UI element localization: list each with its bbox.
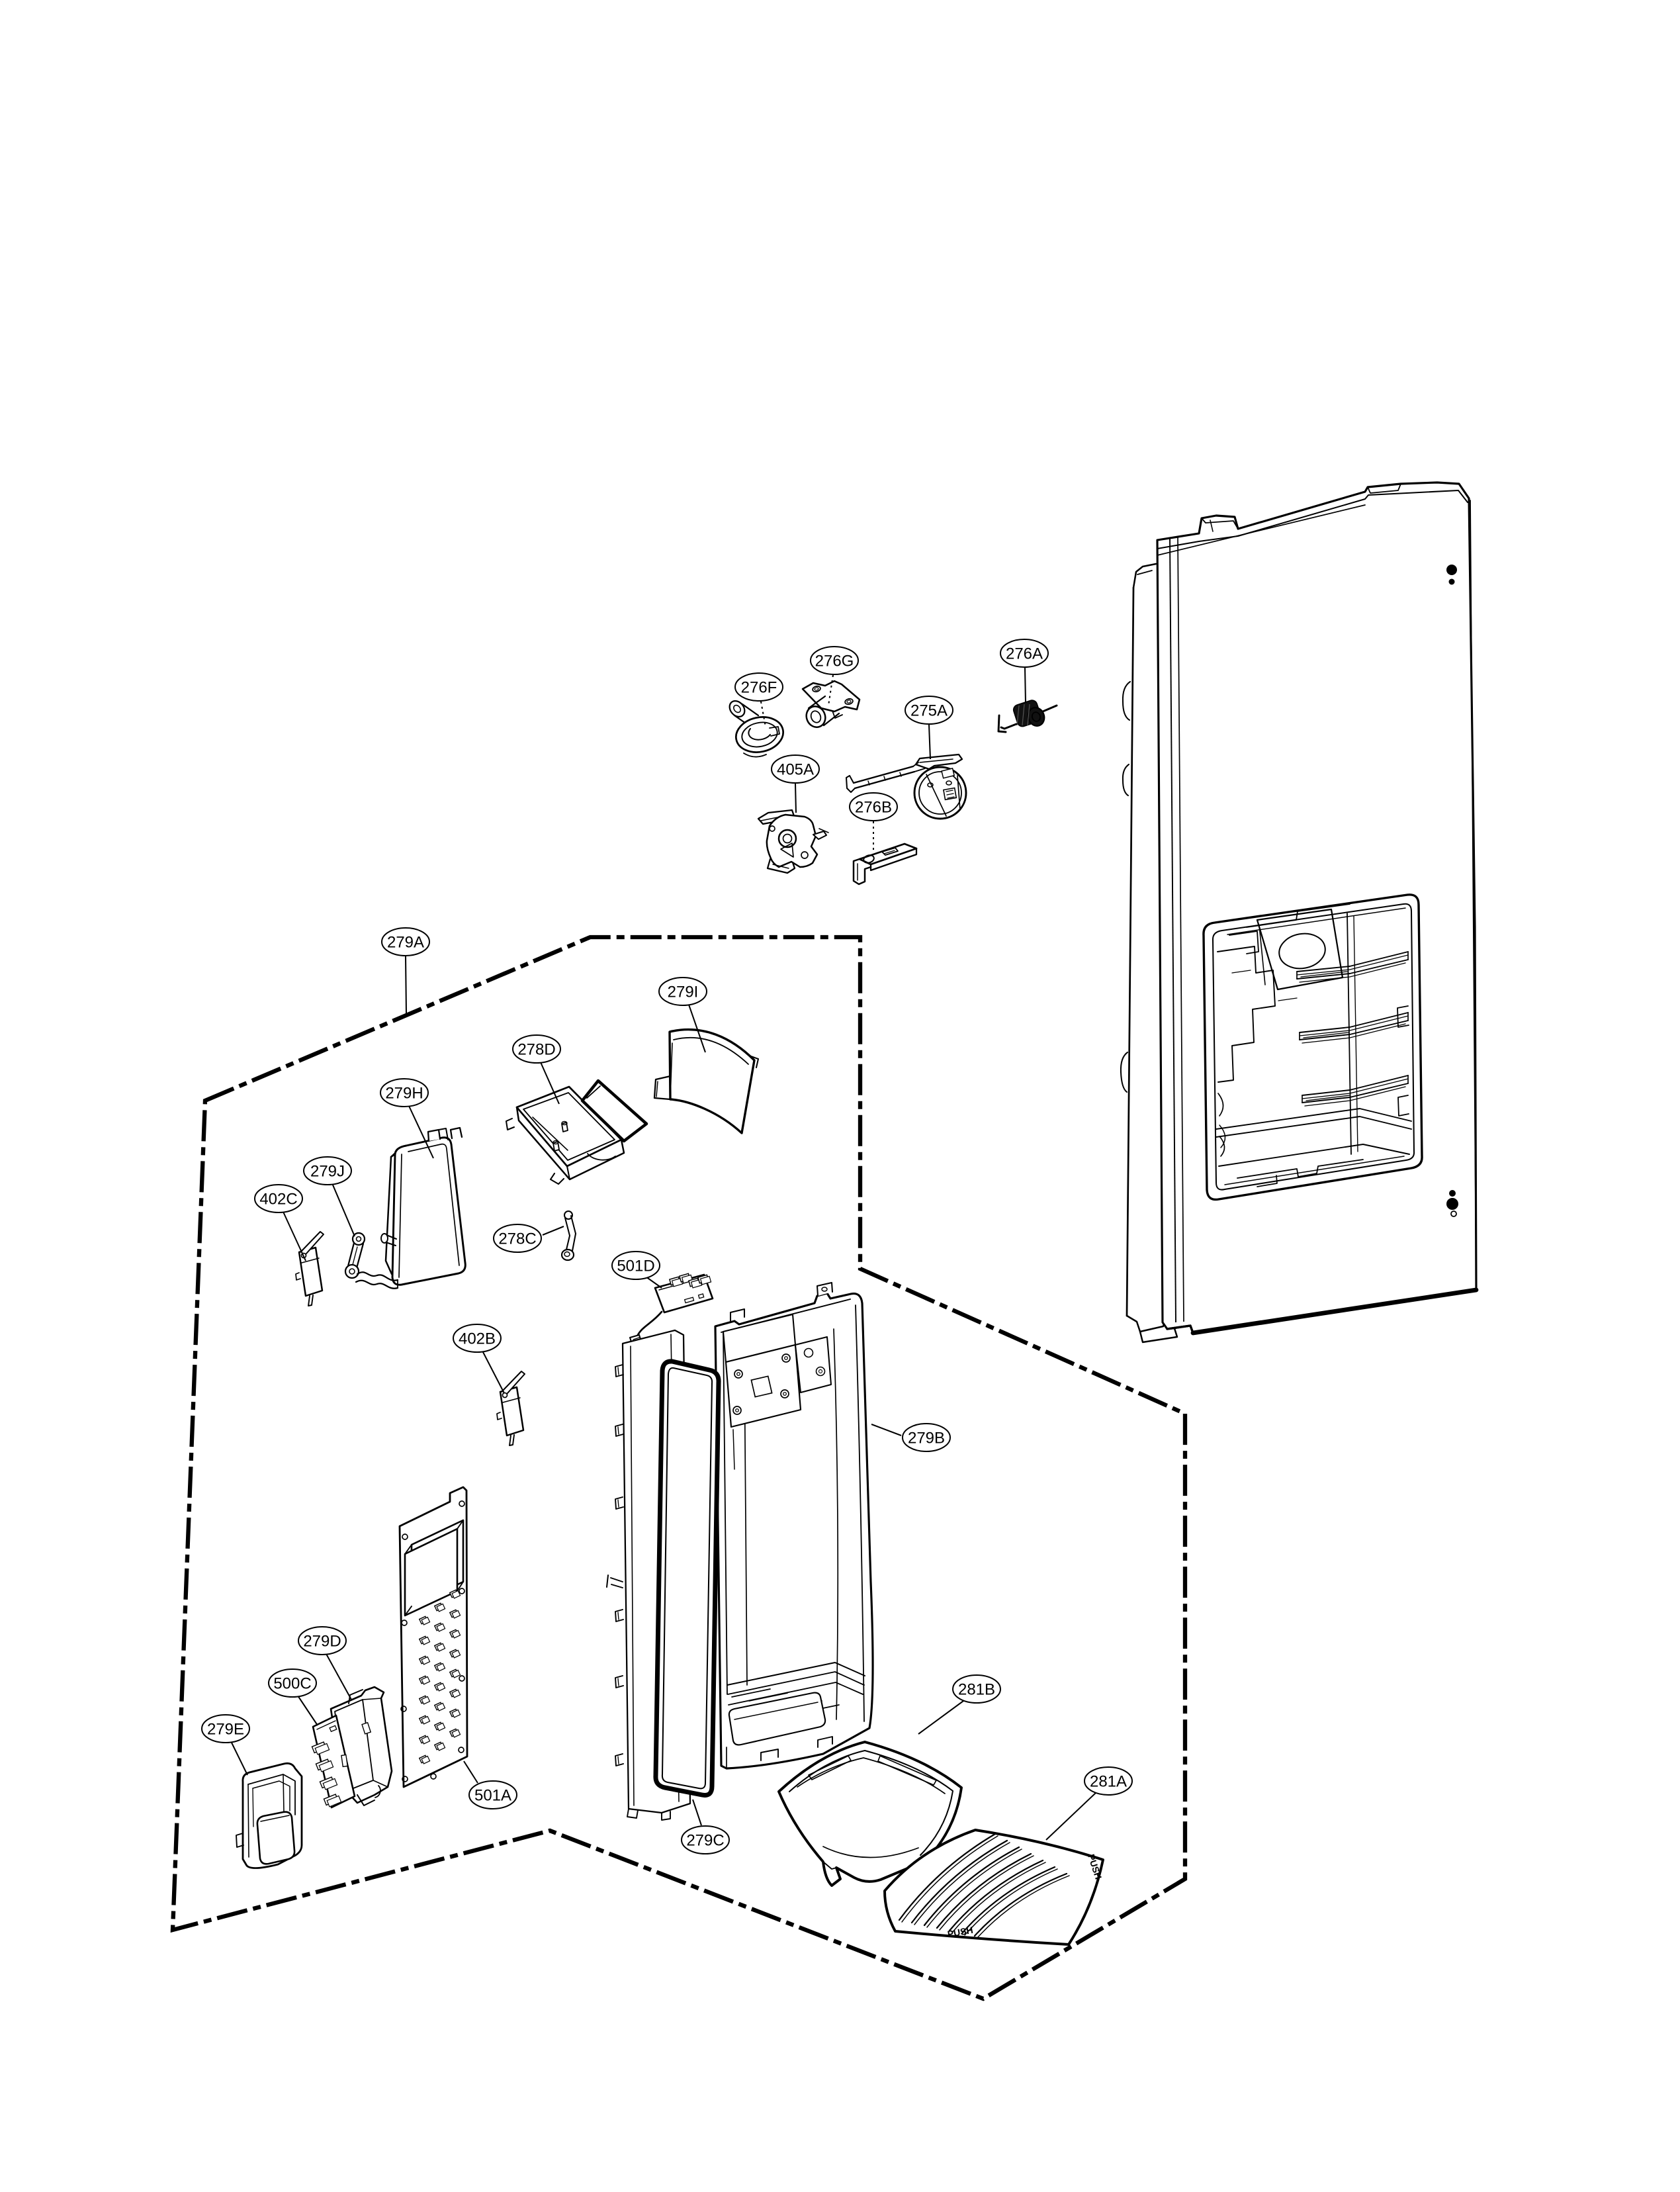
svg-text:405A: 405A [777,761,814,779]
svg-text:402C: 402C [259,1191,297,1209]
svg-text:279E: 279E [207,1721,244,1739]
svg-text:279J: 279J [310,1163,345,1181]
svg-text:276A: 276A [1006,645,1043,663]
svg-text:279C: 279C [686,1832,724,1850]
svg-text:281A: 281A [1090,1773,1127,1791]
svg-text:279A: 279A [387,934,424,952]
svg-text:279B: 279B [908,1430,945,1447]
svg-text:501D: 501D [617,1257,654,1275]
svg-text:276G: 276G [815,653,854,670]
svg-text:281B: 281B [958,1681,995,1699]
svg-text:402B: 402B [459,1330,496,1348]
svg-text:275A: 275A [910,702,948,720]
svg-text:279I: 279I [668,983,699,1001]
svg-text:278D: 278D [517,1041,555,1059]
svg-text:278C: 278C [498,1230,536,1248]
svg-text:279D: 279D [303,1633,341,1651]
svg-text:500C: 500C [273,1675,311,1693]
svg-text:501A: 501A [474,1787,511,1805]
svg-text:276F: 276F [741,679,777,697]
svg-text:279H: 279H [385,1085,423,1103]
svg-text:276B: 276B [855,799,892,817]
